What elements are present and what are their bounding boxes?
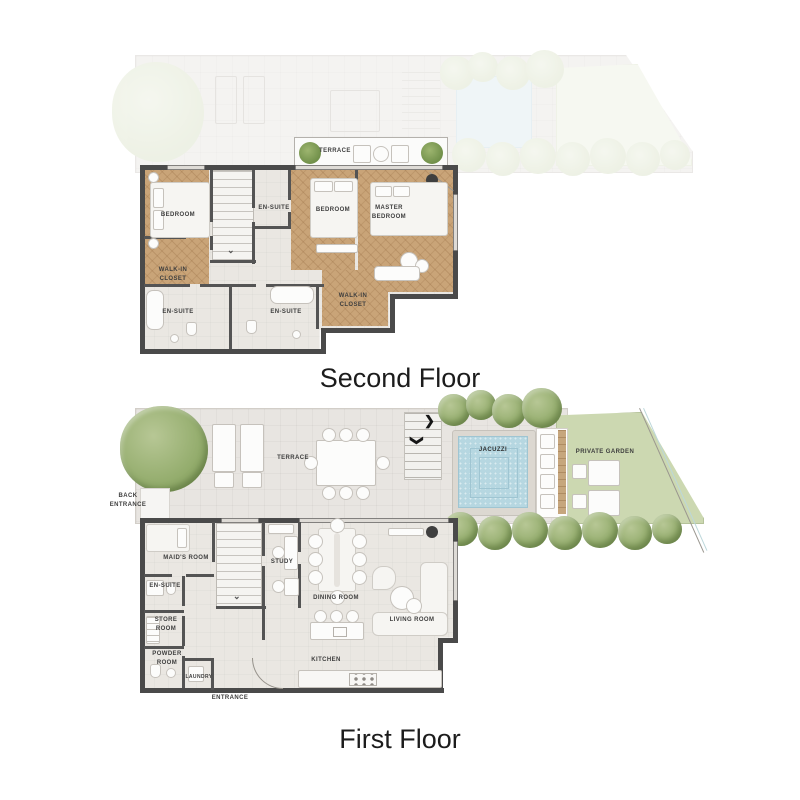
nightstand (148, 172, 159, 183)
window (296, 166, 442, 169)
window (222, 519, 258, 522)
laundry-label: LAUNDRY (182, 674, 216, 682)
partition (316, 287, 319, 329)
partition (262, 566, 265, 608)
stair-direction-icon: ⌄ (227, 246, 235, 255)
terrace-label: TERRACE (319, 147, 351, 156)
private-garden-label: PRIVATE GARDEN (570, 448, 640, 457)
stove (349, 673, 377, 686)
chair (352, 534, 367, 549)
tree-icon (478, 516, 512, 550)
partition (144, 574, 172, 577)
tree-icon (618, 516, 652, 550)
ghost-dining-table (330, 90, 380, 132)
dining-room-label: DINING ROOM (308, 594, 364, 603)
jacuzzi-label: JACUZZI (470, 446, 516, 455)
sun-lounger (212, 424, 236, 472)
tree-icon (626, 142, 660, 176)
wall (140, 518, 145, 693)
chair (352, 552, 367, 567)
jacuzzi-inner-step (479, 457, 509, 489)
garden-lounger (588, 460, 620, 486)
tree-icon (496, 56, 530, 90)
sink (170, 334, 179, 343)
chair (308, 552, 323, 567)
chair (356, 428, 370, 442)
sink (166, 668, 176, 678)
tree-icon (660, 140, 690, 170)
tv-console (388, 528, 424, 536)
tree-icon (466, 390, 496, 420)
partition (186, 574, 214, 577)
back-entrance-label: BACK ENTRANCE (102, 492, 154, 510)
column-icon (426, 526, 438, 538)
chair (322, 486, 336, 500)
lounger-pad (242, 472, 262, 488)
stool (314, 610, 327, 623)
stair-arrow-right-icon: ❯ (424, 414, 435, 427)
pillow (177, 528, 187, 548)
garden-side-table (572, 494, 587, 509)
partition (288, 170, 291, 200)
window (454, 195, 457, 250)
tree-icon (492, 394, 526, 428)
terrace-label: TERRACE (270, 454, 316, 463)
room-label-bedroom-left: BEDROOM (150, 211, 206, 220)
bathtub (270, 286, 314, 304)
sink (292, 330, 301, 339)
partition (252, 170, 255, 208)
store-room-label: STORE ROOM (148, 616, 184, 634)
powder-room-label: POWDER ROOM (146, 650, 188, 668)
partition (216, 606, 266, 609)
chair (308, 534, 323, 549)
tree-icon (120, 406, 208, 492)
terrace-chair (391, 145, 409, 163)
chair (339, 428, 353, 442)
ensuite-label: EN-SUITE (144, 582, 186, 591)
second-floor-plan: TERRACE ⌄ (0, 0, 800, 400)
nightstand (148, 238, 159, 249)
room-label-walkin-right: WALK-IN CLOSET (330, 292, 376, 310)
pillow (153, 188, 164, 208)
first-floor-plan: ❯ ❯ JACUZZI (0, 400, 800, 800)
study-label: STUDY (266, 558, 298, 567)
ghost-stairs (402, 72, 440, 132)
tree-icon (556, 142, 590, 176)
toilet (186, 322, 197, 336)
planter-icon (421, 142, 443, 164)
ghost-lounger (215, 76, 237, 124)
terrace-table (373, 146, 389, 162)
toilet (246, 320, 257, 334)
garden-side-table (572, 464, 587, 479)
maids-room-label: MAID'S ROOM (156, 554, 216, 563)
pillow (393, 186, 410, 197)
bench (374, 266, 420, 281)
chair (356, 486, 370, 500)
tree-icon (112, 62, 204, 162)
stair-arrow-down-icon: ❯ (411, 435, 424, 446)
island-sink (333, 627, 347, 637)
window (454, 542, 457, 600)
chair (330, 518, 345, 533)
kitchen-island (310, 622, 364, 640)
partition (262, 522, 265, 556)
planter-icon (299, 142, 321, 164)
partition (298, 522, 301, 552)
partition (229, 287, 232, 349)
partition (144, 284, 190, 287)
second-floor-title: Second Floor (0, 363, 800, 394)
cabinet (268, 524, 294, 534)
partition (210, 236, 213, 250)
dining-table-outdoor (316, 440, 376, 486)
tree-icon (582, 512, 618, 548)
tree-icon (438, 394, 470, 426)
chair (376, 456, 390, 470)
wall (140, 349, 326, 354)
pillow (375, 186, 392, 197)
chair (352, 570, 367, 585)
deck-cushion (540, 454, 555, 469)
entrance-label: ENTRANCE (208, 694, 252, 703)
chair (322, 428, 336, 442)
tree-icon (468, 52, 498, 82)
partition (210, 170, 213, 222)
deck-cushion (540, 494, 555, 509)
coffee-table (406, 598, 422, 614)
partition (200, 284, 256, 287)
pillow (314, 181, 333, 192)
tree-icon (522, 388, 562, 428)
first-floor-title: First Floor (0, 724, 800, 755)
wall (140, 688, 444, 693)
tree-icon (520, 138, 556, 174)
deck-cushion (540, 434, 555, 449)
room-label-ensuite-center: EN-SUITE (266, 308, 306, 317)
terrace-chair (353, 145, 371, 163)
chair (308, 570, 323, 585)
deck-planks (558, 430, 566, 514)
room-label-master-bedroom: MASTER BEDROOM (366, 204, 412, 222)
tree-icon (486, 142, 520, 176)
kitchen-counter (298, 670, 442, 688)
room-label-ensuite-left: EN-SUITE (158, 308, 198, 317)
partition (182, 576, 185, 606)
tree-icon (548, 516, 582, 550)
partition (144, 646, 184, 649)
wall (390, 294, 395, 333)
room-label-ensuite-top: EN-SUITE (256, 204, 292, 213)
kitchen-label: KITCHEN (304, 656, 348, 665)
tree-icon (652, 514, 682, 544)
deck-cushion (540, 474, 555, 489)
partition (210, 260, 256, 263)
partition (144, 610, 184, 613)
pillow (334, 181, 353, 192)
stair-direction-icon: ⌄ (233, 592, 241, 601)
tree-icon (526, 50, 564, 88)
bench (316, 244, 358, 253)
room-label-walkin-left: WALK-IN CLOSET (150, 266, 196, 284)
ghost-lounger (243, 76, 265, 124)
table-runner (334, 533, 340, 587)
sun-lounger (240, 424, 264, 472)
tree-icon (512, 512, 548, 548)
wall (321, 328, 395, 333)
dining-table (318, 528, 356, 592)
stool (346, 610, 359, 623)
chair (339, 486, 353, 500)
floor-plan-canvas: TERRACE ⌄ (0, 0, 800, 800)
stool (330, 610, 343, 623)
bed (150, 182, 210, 238)
window (300, 519, 448, 522)
wall (390, 294, 458, 299)
lounger-pad (214, 472, 234, 488)
room-label-bedroom-center: BEDROOM (305, 206, 361, 215)
bed (146, 524, 190, 552)
partition (255, 226, 291, 229)
side-desk (284, 578, 299, 596)
tree-icon (590, 138, 626, 174)
living-room-label: LIVING ROOM (384, 616, 440, 625)
window (168, 166, 204, 169)
wall (140, 165, 145, 354)
partition (262, 606, 265, 640)
armchair (372, 566, 396, 590)
